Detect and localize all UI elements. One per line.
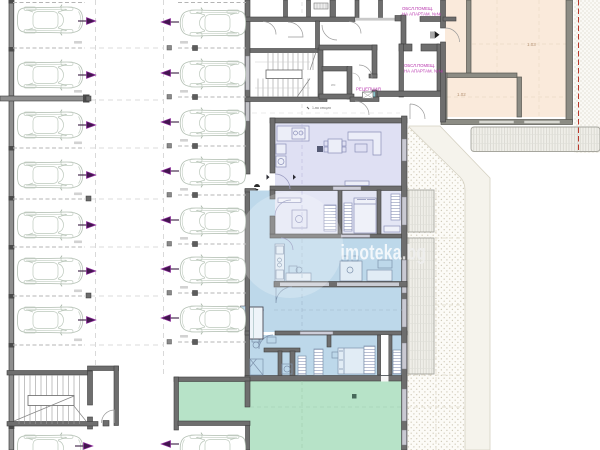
svg-text:1.03: 1.03 bbox=[527, 42, 536, 47]
svg-text:ОБСЛ.ПОМЕЩ.: ОБСЛ.ПОМЕЩ. bbox=[402, 6, 433, 11]
svg-text:1.02: 1.02 bbox=[457, 92, 466, 97]
svg-text:ОБСЛ.ПОМЕЩ.: ОБСЛ.ПОМЕЩ. bbox=[404, 63, 435, 68]
svg-text:НА АПАРТАМ. №№: НА АПАРТАМ. №№ bbox=[404, 69, 444, 74]
svg-text:РЕЦЕПЦИЯ: РЕЦЕПЦИЯ bbox=[356, 87, 381, 92]
svg-text:1-ва секция: 1-ва секция bbox=[312, 106, 331, 110]
svg-text:imoteka.bg: imoteka.bg bbox=[341, 240, 427, 264]
svg-text:НА АПАРТАМ. №№: НА АПАРТАМ. №№ bbox=[402, 12, 442, 17]
svg-text:wc: wc bbox=[331, 83, 336, 87]
